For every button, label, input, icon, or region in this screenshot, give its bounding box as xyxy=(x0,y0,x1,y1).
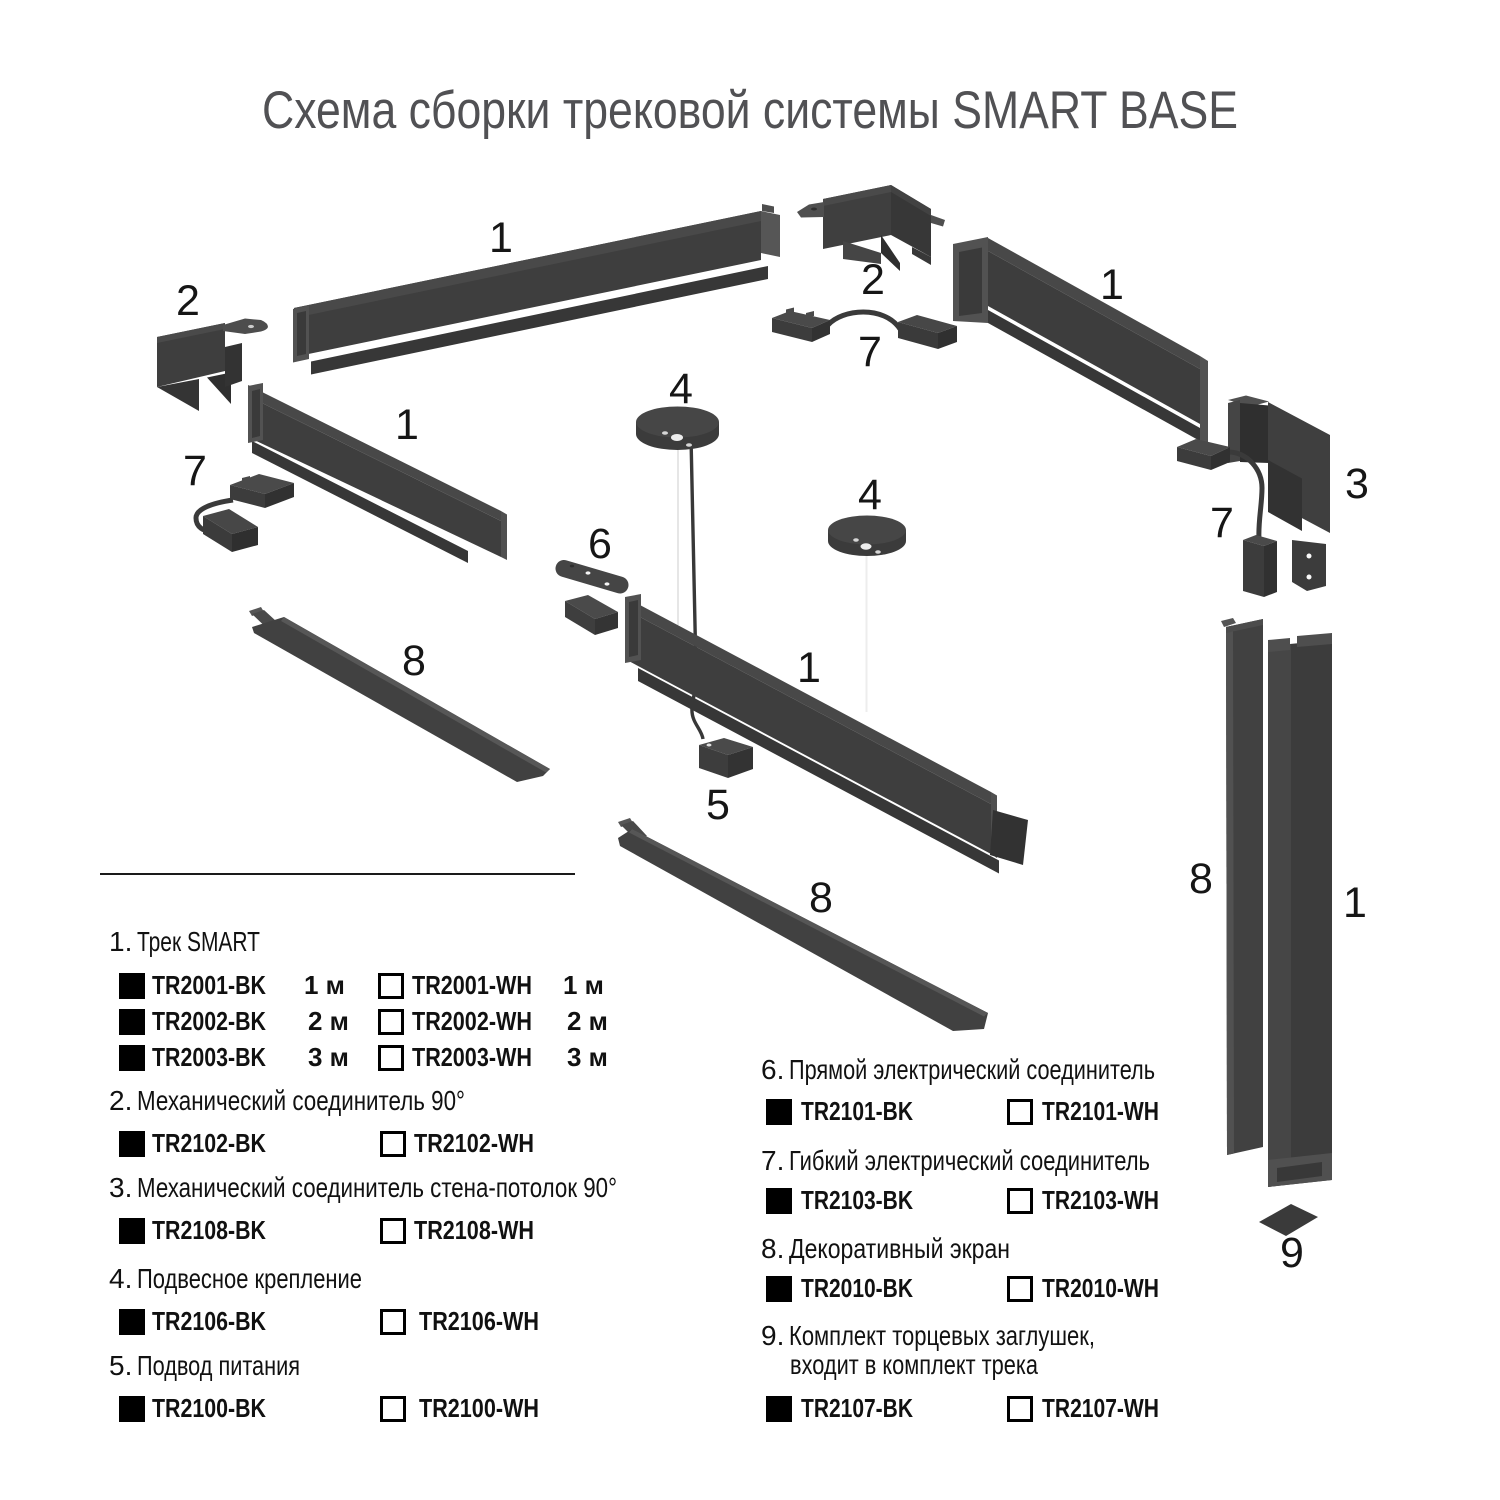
svg-text:3 м: 3 м xyxy=(567,1042,608,1072)
svg-text:Механический соединитель 90°: Механический соединитель 90° xyxy=(137,1085,465,1116)
svg-text:1 м: 1 м xyxy=(563,970,604,1000)
svg-text:2: 2 xyxy=(176,277,200,325)
svg-text:8: 8 xyxy=(1189,855,1213,903)
svg-text:Схема сборки трековой системы: Схема сборки трековой системы SMART BASE xyxy=(262,81,1238,140)
svg-text:7: 7 xyxy=(1210,499,1234,547)
svg-text:TR2107-BK: TR2107-BK xyxy=(801,1393,913,1423)
svg-text:1: 1 xyxy=(489,214,513,262)
svg-text:1: 1 xyxy=(395,401,419,449)
svg-text:1: 1 xyxy=(797,644,821,692)
svg-text:TR2107-WH: TR2107-WH xyxy=(1042,1393,1159,1423)
svg-text:4: 4 xyxy=(669,365,693,413)
svg-text:входит в комплект трека: входит в комплект трека xyxy=(790,1349,1038,1380)
svg-text:1: 1 xyxy=(1100,261,1124,309)
svg-text:TR2102-BK: TR2102-BK xyxy=(152,1128,266,1158)
svg-text:TR2106-BK: TR2106-BK xyxy=(152,1306,266,1336)
svg-text:Гибкий электрический соедините: Гибкий электрический соединитель xyxy=(789,1145,1150,1176)
svg-text:9: 9 xyxy=(1280,1229,1304,1277)
svg-text:5: 5 xyxy=(706,781,730,829)
svg-text:8: 8 xyxy=(402,637,426,685)
svg-text:TR2103-BK: TR2103-BK xyxy=(801,1185,913,1215)
svg-text:TR2002-WH: TR2002-WH xyxy=(412,1006,532,1036)
svg-text:TR2101-WH: TR2101-WH xyxy=(1042,1096,1159,1126)
svg-text:9.: 9. xyxy=(761,1320,784,1351)
svg-text:2.: 2. xyxy=(109,1085,132,1116)
svg-text:Трек SMART: Трек SMART xyxy=(137,926,260,957)
svg-text:3.: 3. xyxy=(109,1172,132,1203)
svg-text:1: 1 xyxy=(1343,879,1367,927)
svg-text:4.: 4. xyxy=(109,1263,132,1294)
svg-text:7: 7 xyxy=(183,447,207,495)
svg-text:6: 6 xyxy=(588,520,612,568)
svg-text:5.: 5. xyxy=(109,1350,132,1381)
svg-text:7: 7 xyxy=(858,328,882,376)
svg-text:2: 2 xyxy=(861,256,885,304)
svg-text:TR2103-WH: TR2103-WH xyxy=(1042,1185,1159,1215)
svg-text:TR2001-WH: TR2001-WH xyxy=(412,970,532,1000)
svg-text:3: 3 xyxy=(1345,460,1369,508)
svg-text:TR2003-WH: TR2003-WH xyxy=(412,1042,532,1072)
svg-text:8: 8 xyxy=(809,874,833,922)
svg-text:TR2001-BK: TR2001-BK xyxy=(152,970,266,1000)
svg-text:Механический соединитель стена: Механический соединитель стена-потолок 9… xyxy=(137,1172,617,1203)
svg-text:TR2100-WH: TR2100-WH xyxy=(419,1393,539,1423)
svg-text:3 м: 3 м xyxy=(308,1042,349,1072)
svg-text:TR2108-WH: TR2108-WH xyxy=(414,1215,534,1245)
svg-text:TR2002-BK: TR2002-BK xyxy=(152,1006,266,1036)
svg-text:Подвод питания: Подвод питания xyxy=(137,1350,300,1381)
svg-text:TR2108-BK: TR2108-BK xyxy=(152,1215,266,1245)
svg-text:Прямой электрический соедините: Прямой электрический соединитель xyxy=(789,1054,1155,1085)
svg-text:1 м: 1 м xyxy=(304,970,345,1000)
svg-text:TR2101-BK: TR2101-BK xyxy=(801,1096,913,1126)
svg-text:2 м: 2 м xyxy=(567,1006,608,1036)
svg-text:4: 4 xyxy=(858,471,882,519)
svg-text:Подвесное крепление: Подвесное крепление xyxy=(137,1263,362,1294)
svg-text:8.: 8. xyxy=(761,1233,784,1264)
svg-text:TR2003-BK: TR2003-BK xyxy=(152,1042,266,1072)
svg-text:TR2010-BK: TR2010-BK xyxy=(801,1273,913,1303)
svg-text:TR2100-BK: TR2100-BK xyxy=(152,1393,266,1423)
svg-text:6.: 6. xyxy=(761,1054,784,1085)
svg-text:2 м: 2 м xyxy=(308,1006,349,1036)
svg-text:TR2102-WH: TR2102-WH xyxy=(414,1128,534,1158)
svg-text:7.: 7. xyxy=(761,1145,784,1176)
svg-text:1.: 1. xyxy=(109,926,132,957)
svg-text:TR2106-WH: TR2106-WH xyxy=(419,1306,539,1336)
svg-text:Декоративный экран: Декоративный экран xyxy=(789,1233,1010,1264)
svg-text:TR2010-WH: TR2010-WH xyxy=(1042,1273,1159,1303)
svg-text:Комплект торцевых заглушек,: Комплект торцевых заглушек, xyxy=(789,1320,1095,1351)
